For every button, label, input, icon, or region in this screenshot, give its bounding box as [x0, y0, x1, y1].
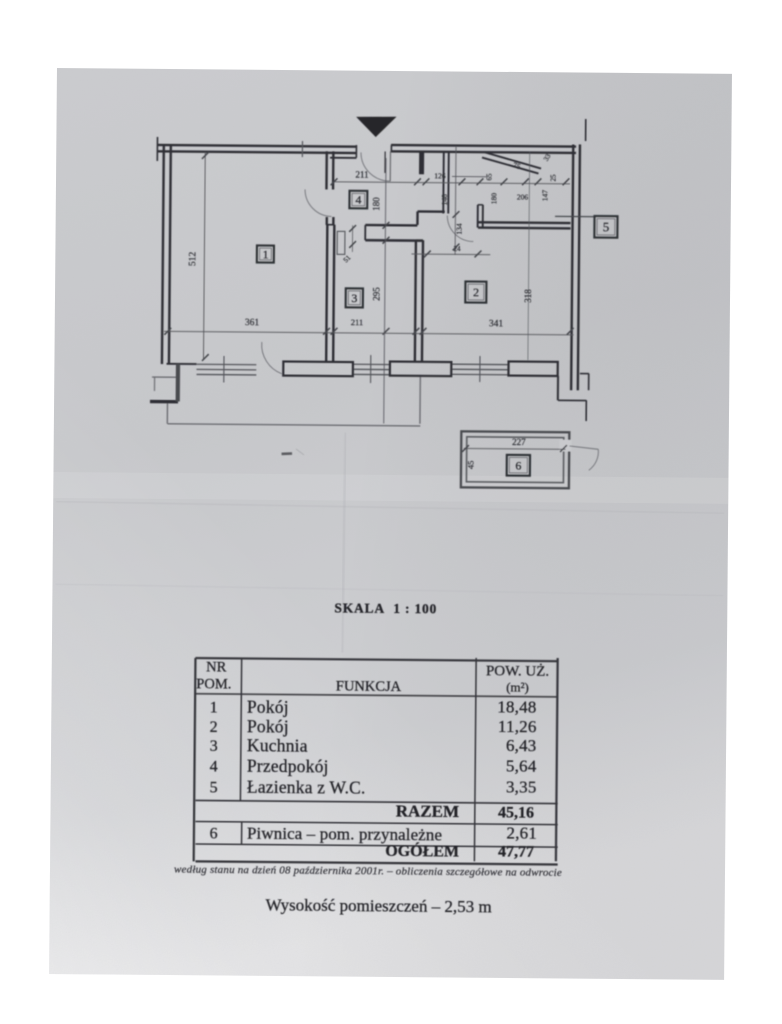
- svg-text:Pokój: Pokój: [247, 716, 289, 736]
- svg-text:2,61: 2,61: [506, 823, 537, 842]
- svg-text:148: 148: [440, 194, 449, 206]
- svg-text:206: 206: [517, 192, 529, 201]
- svg-text:Piwnica – pom. przynależne: Piwnica – pom. przynależne: [247, 824, 442, 845]
- svg-text:180: 180: [371, 197, 381, 211]
- svg-text:POW. UŻ.: POW. UŻ.: [486, 663, 549, 680]
- svg-text:18,48: 18,48: [497, 698, 536, 717]
- svg-text:OGÓŁEM: OGÓŁEM: [385, 841, 459, 861]
- svg-text:2: 2: [473, 285, 479, 299]
- svg-text:6: 6: [210, 826, 218, 843]
- svg-text:318: 318: [523, 289, 533, 303]
- svg-text:3: 3: [351, 291, 357, 305]
- svg-text:1: 1: [210, 699, 218, 716]
- svg-text:Łazienka z W.C.: Łazienka z W.C.: [247, 776, 366, 797]
- svg-text:3: 3: [210, 738, 218, 755]
- svg-text:5: 5: [210, 779, 218, 796]
- svg-text:6: 6: [515, 458, 521, 472]
- svg-text:180: 180: [489, 193, 498, 205]
- svg-text:295: 295: [371, 287, 381, 301]
- svg-text:25: 25: [549, 174, 557, 182]
- svg-text:5,64: 5,64: [506, 757, 537, 776]
- svg-text:RAZEM: RAZEM: [396, 801, 459, 821]
- svg-text:47,77: 47,77: [498, 843, 534, 860]
- svg-text:512: 512: [188, 252, 198, 267]
- svg-text:Przedpokój: Przedpokój: [247, 755, 329, 776]
- svg-text:6,43: 6,43: [506, 736, 537, 755]
- svg-text:126: 126: [434, 171, 446, 180]
- svg-text:4: 4: [355, 193, 361, 207]
- svg-text:Pokój: Pokój: [247, 696, 289, 716]
- svg-text:361: 361: [245, 318, 260, 328]
- svg-text:45,16: 45,16: [498, 804, 534, 821]
- svg-text:11,26: 11,26: [498, 717, 537, 736]
- svg-text:227: 227: [512, 437, 526, 447]
- svg-text:NR: NR: [206, 659, 227, 675]
- svg-text:Wysokość pomieszczeń – 2,53 m: Wysokość pomieszczeń – 2,53 m: [265, 896, 491, 917]
- svg-text:Kuchnia: Kuchnia: [247, 735, 308, 756]
- svg-text:2: 2: [210, 719, 218, 736]
- svg-text:211: 211: [355, 169, 368, 179]
- svg-text:134: 134: [454, 223, 463, 235]
- svg-text:24: 24: [454, 245, 462, 253]
- svg-text:211: 211: [351, 317, 364, 327]
- svg-text:FUNKCJA: FUNKCJA: [336, 678, 402, 695]
- svg-text:5: 5: [603, 219, 610, 234]
- svg-text:POM.: POM.: [196, 676, 231, 692]
- svg-text:1: 1: [263, 247, 269, 261]
- svg-text:341: 341: [489, 319, 504, 329]
- svg-text:(m²): (m²): [506, 679, 529, 694]
- svg-text:3,35: 3,35: [506, 778, 537, 797]
- svg-text:45: 45: [466, 461, 476, 470]
- svg-text:4: 4: [210, 758, 218, 775]
- svg-text:147: 147: [540, 190, 549, 202]
- svg-text:SKALA 1 : 100: SKALA 1 : 100: [334, 601, 437, 617]
